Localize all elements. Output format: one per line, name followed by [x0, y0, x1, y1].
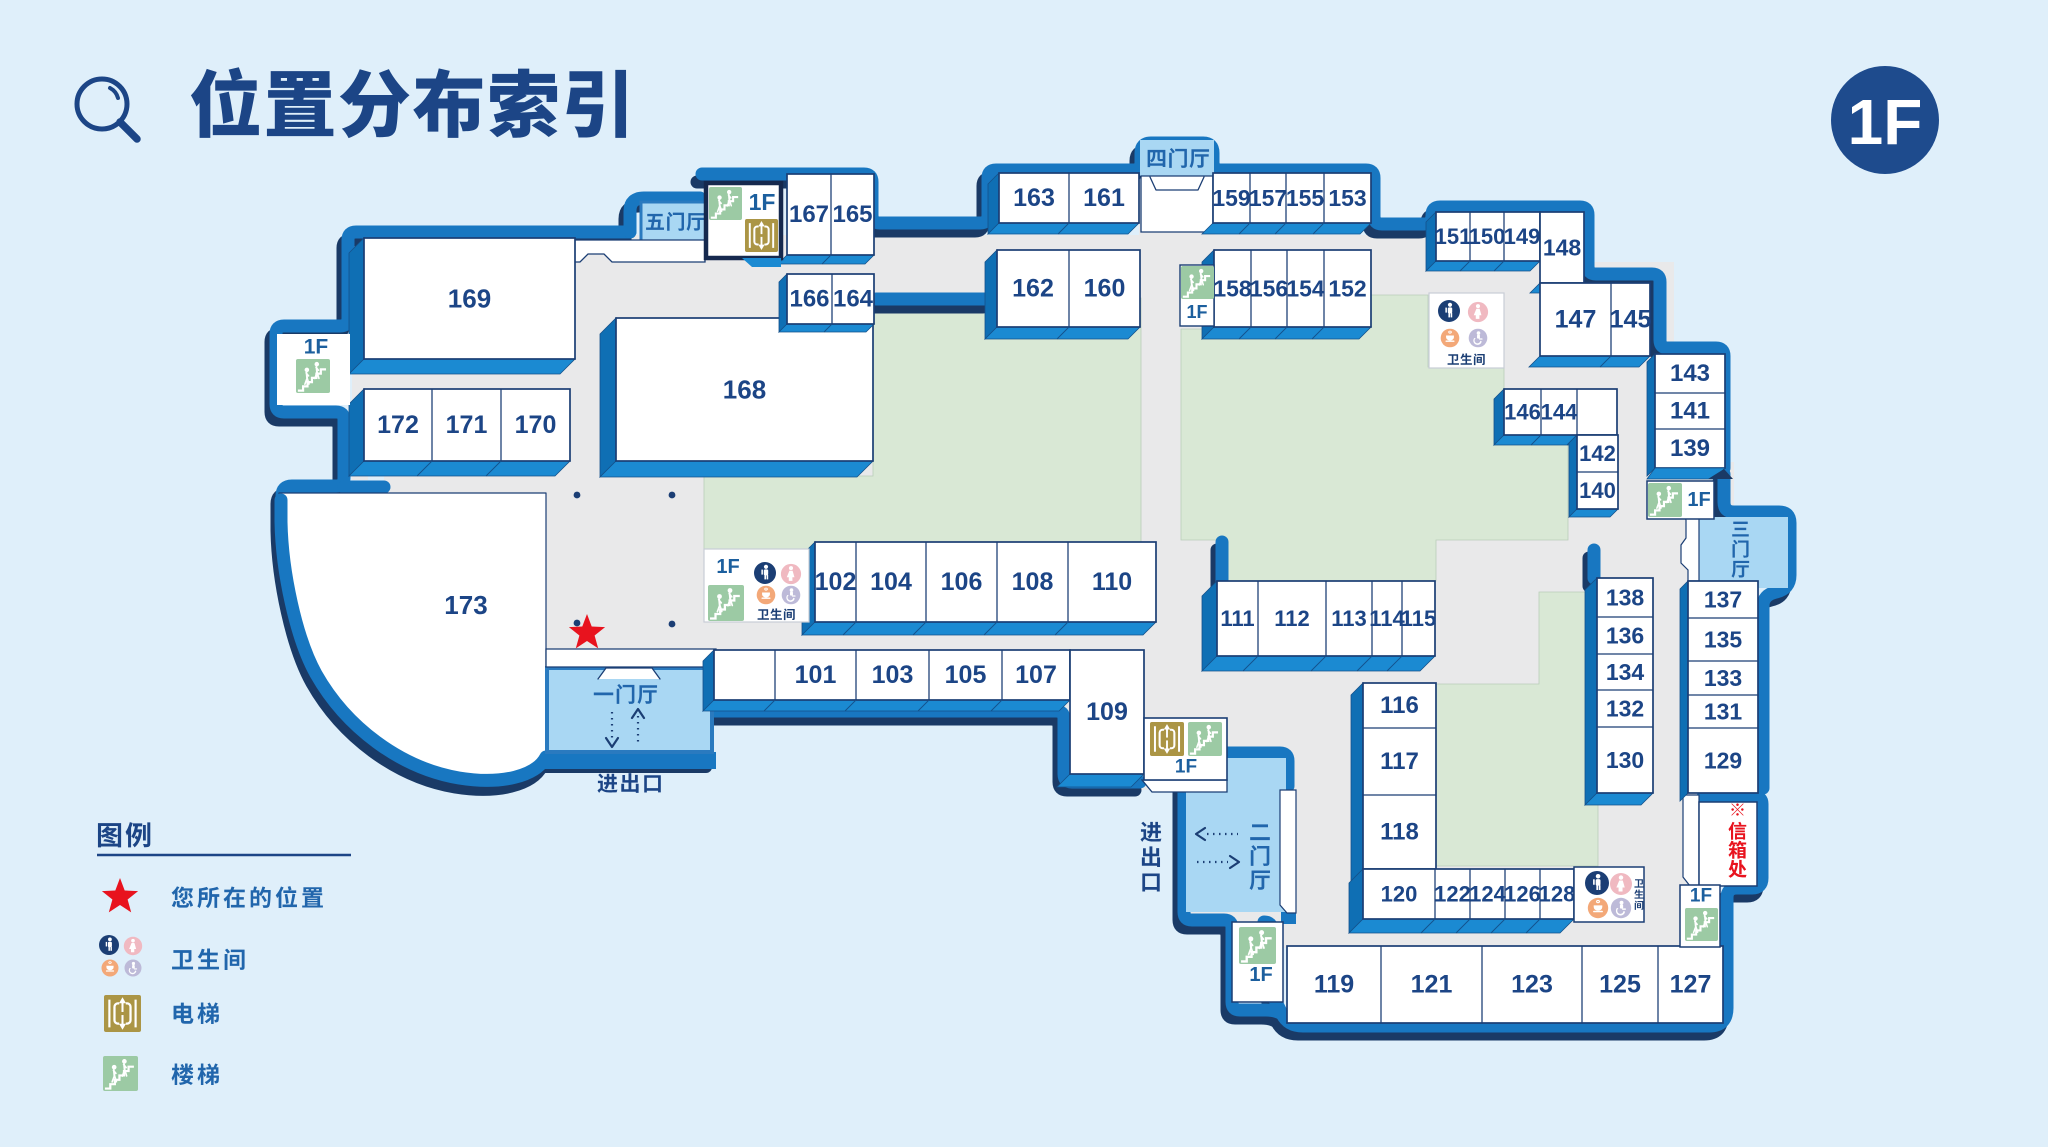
svg-text:137: 137	[1704, 587, 1742, 613]
svg-text:166: 166	[789, 286, 829, 313]
svg-text:149: 149	[1504, 224, 1541, 249]
svg-text:150: 150	[1469, 224, 1506, 249]
svg-text:113: 113	[1331, 606, 1367, 631]
svg-text:170: 170	[515, 411, 557, 439]
svg-text:151: 151	[1435, 224, 1472, 249]
svg-text:107: 107	[1015, 661, 1057, 689]
svg-text:117: 117	[1380, 748, 1419, 775]
svg-text:121: 121	[1411, 971, 1453, 999]
svg-text:109: 109	[1086, 698, 1128, 726]
svg-text:152: 152	[1328, 276, 1366, 302]
svg-text:1F: 1F	[1249, 964, 1272, 986]
svg-text:158: 158	[1213, 276, 1252, 302]
svg-text:163: 163	[1013, 184, 1055, 212]
svg-text:134: 134	[1606, 659, 1645, 685]
svg-text:136: 136	[1606, 623, 1644, 649]
svg-text:1F: 1F	[304, 336, 329, 359]
svg-text:104: 104	[870, 568, 912, 596]
svg-text:116: 116	[1380, 692, 1419, 719]
svg-text:106: 106	[941, 568, 983, 596]
svg-text:131: 131	[1704, 699, 1743, 725]
svg-text:132: 132	[1606, 696, 1644, 722]
svg-text:146: 146	[1504, 400, 1541, 425]
svg-text:119: 119	[1314, 971, 1354, 999]
svg-text:139: 139	[1670, 435, 1710, 462]
svg-text:168: 168	[723, 375, 766, 405]
svg-text:129: 129	[1704, 748, 1742, 774]
svg-text:156: 156	[1250, 276, 1288, 302]
svg-text:105: 105	[945, 661, 987, 689]
svg-text:145: 145	[1610, 306, 1652, 334]
svg-text:123: 123	[1511, 971, 1553, 999]
svg-text:155: 155	[1286, 185, 1325, 211]
svg-text:133: 133	[1704, 665, 1742, 691]
svg-text:120: 120	[1381, 882, 1418, 907]
svg-text:1F: 1F	[1848, 86, 1923, 158]
svg-text:127: 127	[1670, 971, 1712, 999]
svg-text:111: 111	[1220, 606, 1254, 631]
svg-text:160: 160	[1084, 275, 1126, 303]
svg-text:1F: 1F	[1175, 757, 1197, 778]
svg-text:143: 143	[1670, 360, 1710, 387]
svg-text:165: 165	[832, 201, 872, 228]
svg-text:122: 122	[1434, 882, 1471, 907]
svg-text:108: 108	[1012, 568, 1054, 596]
svg-text:135: 135	[1704, 627, 1743, 653]
svg-text:144: 144	[1541, 400, 1578, 425]
svg-text:138: 138	[1606, 585, 1645, 611]
svg-text:172: 172	[377, 411, 419, 439]
svg-text:154: 154	[1286, 276, 1325, 302]
svg-text:140: 140	[1579, 478, 1616, 503]
svg-text:124: 124	[1469, 882, 1506, 907]
svg-text:1F: 1F	[1186, 302, 1207, 322]
svg-text:142: 142	[1579, 441, 1616, 466]
svg-text:125: 125	[1599, 971, 1641, 999]
svg-text:1F: 1F	[749, 189, 776, 215]
svg-text:161: 161	[1083, 184, 1125, 212]
svg-text:115: 115	[1401, 606, 1437, 631]
svg-text:169: 169	[448, 284, 491, 314]
svg-text:157: 157	[1249, 185, 1287, 211]
svg-text:159: 159	[1212, 185, 1250, 211]
svg-text:162: 162	[1012, 275, 1054, 303]
svg-text:1F: 1F	[1690, 886, 1712, 907]
svg-text:126: 126	[1504, 882, 1541, 907]
svg-text:103: 103	[872, 661, 914, 689]
svg-text:153: 153	[1328, 185, 1366, 211]
svg-text:164: 164	[833, 286, 874, 313]
svg-text:1F: 1F	[1687, 489, 1710, 511]
svg-text:148: 148	[1543, 235, 1582, 261]
svg-text:171: 171	[446, 411, 488, 439]
svg-text:173: 173	[444, 590, 487, 620]
svg-text:128: 128	[1539, 882, 1576, 907]
svg-text:110: 110	[1092, 568, 1132, 596]
svg-text:130: 130	[1606, 747, 1644, 773]
svg-text:141: 141	[1670, 398, 1710, 425]
svg-text:167: 167	[789, 201, 829, 228]
svg-text:118: 118	[1380, 819, 1419, 846]
svg-text:112: 112	[1274, 606, 1310, 631]
svg-text:102: 102	[815, 568, 857, 596]
svg-text:147: 147	[1555, 306, 1597, 334]
svg-text:1F: 1F	[716, 556, 739, 578]
svg-text:101: 101	[795, 661, 837, 689]
